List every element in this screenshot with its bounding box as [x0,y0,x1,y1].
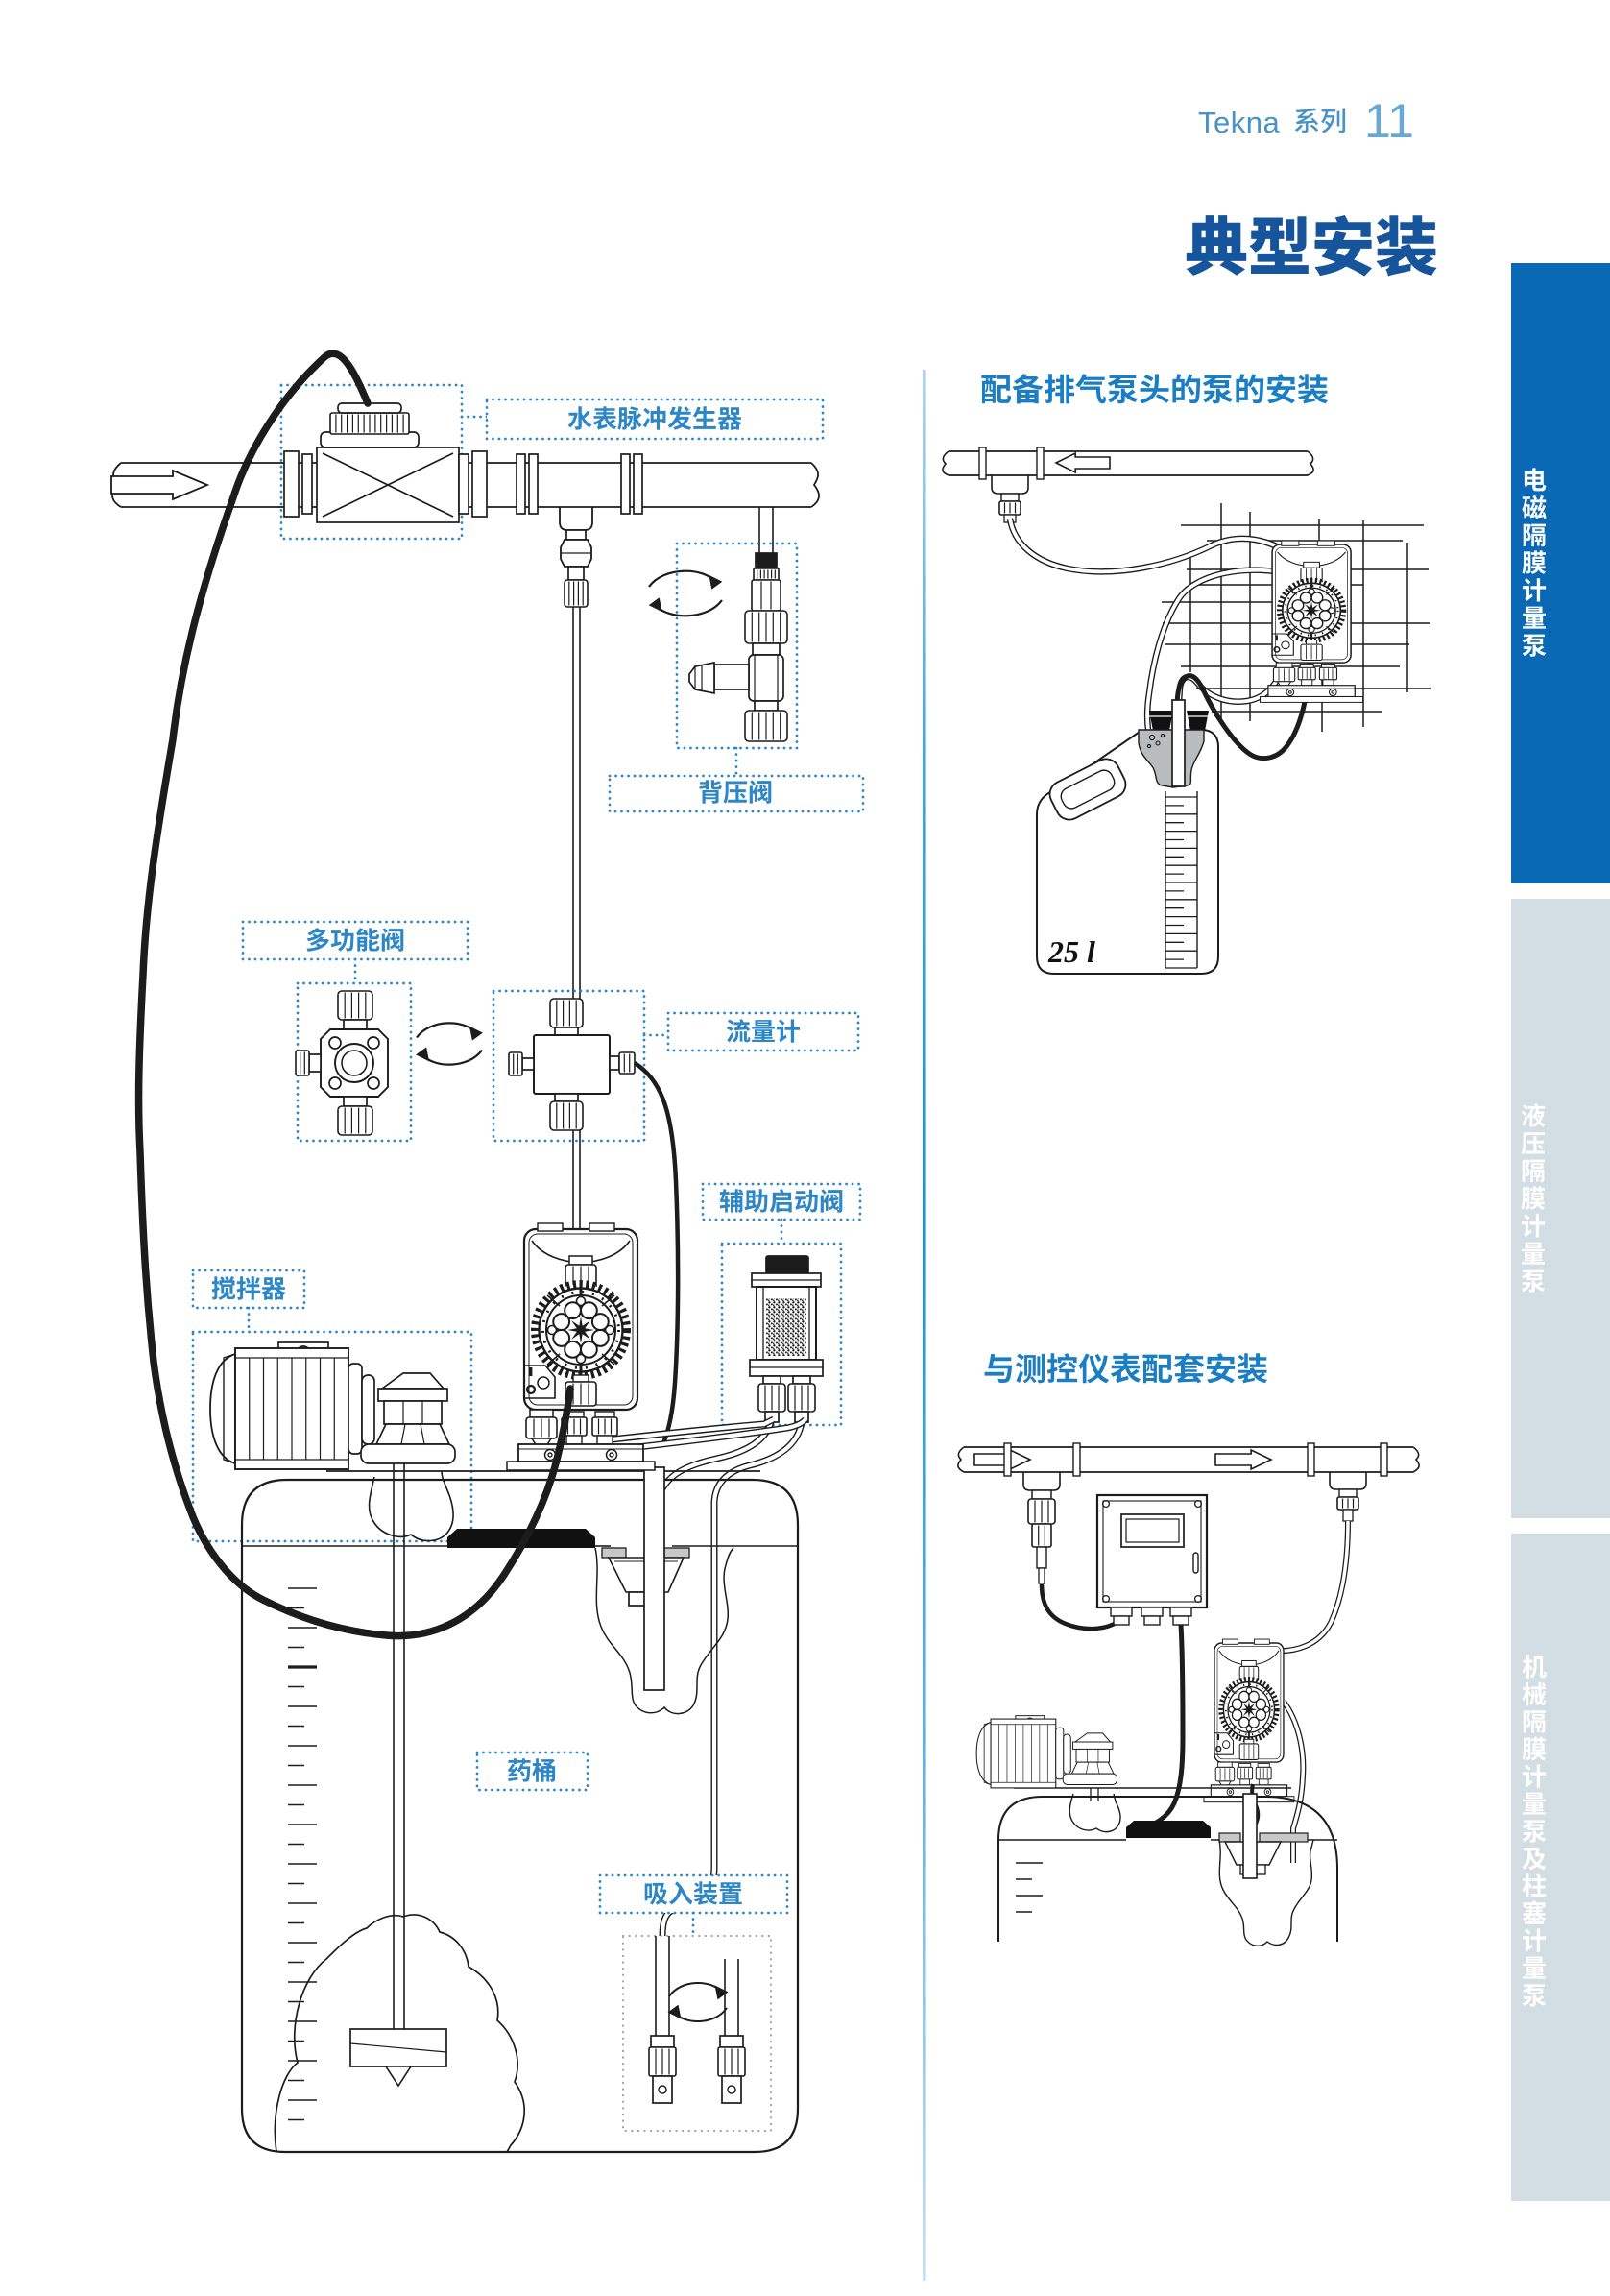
svg-text:11: 11 [1364,94,1414,148]
svg-text:25 l: 25 l [1047,934,1095,969]
svg-text:Tekna: Tekna [1198,106,1280,139]
